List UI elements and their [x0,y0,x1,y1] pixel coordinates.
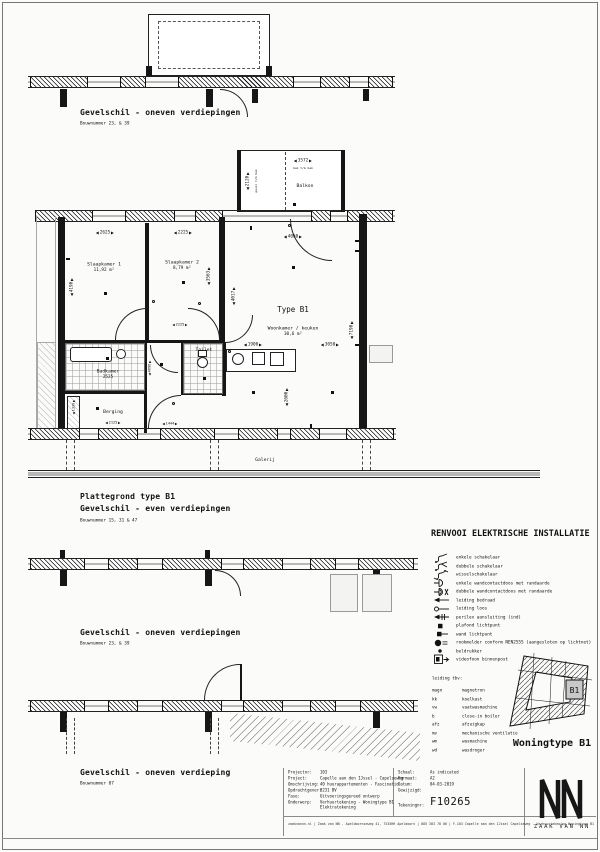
plan-title-2: Gevelschil - even verdiepingen [80,504,231,513]
tb-label: Fase: [288,794,300,799]
wall-hatch [346,429,394,439]
gallery-label: Galerij [255,457,275,463]
ceiling-light-symbol [160,363,163,366]
conduit-label: wasmachine [462,739,487,744]
wall-hatch [347,211,393,221]
section-subtitle: Bouwnummer 07 [80,781,114,786]
balkon-wall [341,150,345,212]
wall-socket-symbol [66,258,70,260]
adjacent-unit-box [369,345,393,363]
door-leaf [240,664,242,700]
wall-hatch [290,429,320,439]
ceiling-light-symbol [292,266,295,269]
room-label-slaapkamer1: Slaapkamer 1 11,92 m² [87,262,121,274]
dimension-label: 1444 [162,422,177,426]
switch-symbol [198,302,201,305]
wall-hatch [98,429,138,439]
plan-subtitle: Bouwnummer 15, 31 & 47 [80,518,137,523]
tb-label: Gewijzigd: [398,788,422,793]
bathroom-wall [65,391,145,394]
ceiling-light-symbol [331,391,334,394]
conduit-abbr: b [432,714,435,719]
switch-symbol [152,300,155,303]
legend-label: leiding loos [456,606,487,611]
section-subtitle: Bouwnummer 23, & 39 [80,121,129,126]
unit-highlight-label: B1 [570,686,580,695]
tb-value: 40 huurappartementen - Fascinatio [320,782,399,787]
section-title: Gevelschil - oneven verdiepingen [80,628,241,637]
room-label-badkamer: Badkamer 2525 [97,369,120,381]
facade-band [28,76,395,88]
section-title: Gevelschil - oneven verdieping [80,768,231,777]
kitchen-hob [270,352,284,366]
gallery-edge-line [28,470,540,471]
room-name: Badkamer [97,369,120,374]
wall-hatch [243,559,283,569]
conduit-abbr: wd [432,748,437,753]
conduit-label: magnetron [462,688,485,693]
tb-value: 8231 BV [320,788,337,793]
dimension-note: bak t/m bak [293,166,313,170]
facade-band [28,558,418,570]
wall-socket-symbol [355,250,359,252]
dimension-label: 3563 [207,267,211,285]
legend-label: dubbele schakelaar [456,563,503,568]
wall-socket-symbol [250,226,252,230]
plan-top-wall [35,210,395,222]
wall-post [205,570,212,586]
dimension-label: 3572 [294,159,312,163]
ceiling-light-symbol [104,292,107,295]
gallery-dashed-line [74,440,75,470]
wall-socket-symbol [355,240,359,242]
room-area: 8,79 m² [165,266,199,272]
conduit-abbr: kk [432,697,437,702]
dimension-label: 2600 [285,388,289,406]
legend-title: RENVOOI ELEKTRISCHE INSTALLATIE [431,529,590,539]
section-title: Gevelschil - oneven verdiepingen [80,108,241,117]
gallery-dashed-line [210,440,211,470]
wall-post [373,712,380,728]
dimension-label: 4696 [148,360,152,375]
tb-value: 04-03-2019 [430,782,454,787]
kitchen-sink [232,353,244,365]
conduit-label: afzuigkap [462,722,485,727]
kitchen-appliance [252,352,265,365]
wall-hatch [160,429,215,439]
legend-label: plafond lichtpunt [456,623,500,628]
section-subtitle: Bouwnummer 23, & 39 [80,641,129,646]
wall-post [252,89,258,103]
legend-label: enkele schakelaar [456,555,500,560]
dimension-label: 2625 [96,231,114,235]
room-name: Slaapkamer 1 [87,262,121,267]
dimension-label: 1330 [72,399,76,414]
tb-label: Project: [288,776,307,781]
dashed-projection-line [66,718,67,754]
conduit-list-title: leiding tbv: [432,676,462,681]
wall-post [206,89,213,107]
gallery-dashed-line [66,440,67,470]
conduit-label: koelkast [462,697,482,702]
drawing-sheet: { "sections": { "facade_top": {"title": … [0,0,600,852]
wall-hatch [238,429,278,439]
ceiling-light-symbol [203,377,206,380]
room-label-woonkamer: Woonkamer / keuken 30,6 m² [268,326,319,338]
tb-label: Schaal: [398,770,415,775]
room-name: Woonkamer / keuken [268,326,319,331]
adjacent-unit-hatch [37,342,56,432]
toilet-bowl [197,357,208,368]
conduit-abbr: afz [432,722,440,727]
wall-hatch [320,77,350,87]
dimension-label: 4190 [70,278,74,296]
balkon-outline [237,150,345,212]
dimension-label: 4017 [232,287,236,305]
intercom-icon [433,654,451,665]
switch-symbol [288,224,291,227]
wall-hatch [120,77,146,87]
wall-post [363,89,369,101]
tb-label: Datum: [398,782,412,787]
dimension-label: 4060 [284,235,302,239]
dashed-projection-line [210,718,211,754]
wall-hatch [360,701,414,711]
gallery-edge-line [28,477,540,478]
left-wall [58,217,65,433]
room-area: 11,92 m² [87,268,121,274]
room-area: 30,6 m² [268,332,319,338]
wall-hatch [310,701,336,711]
conduit-label: close-in boiler [462,714,500,719]
room-label-balkon: Balkon [297,183,314,189]
ceiling-light-symbol [96,407,99,410]
tb-value: Uitvoeringsgereed ontwerp [320,794,380,799]
plan-title: Plattegrond type B1 [80,492,175,501]
conduit-abbr: magn [432,688,442,693]
legend-label: wand lichtpunt [456,631,492,636]
legend-label: leiding bedraad [456,597,495,602]
tb-label: Formaat: [398,776,417,781]
wall-hatch [125,211,175,221]
wall-hatch [30,701,85,711]
dimension-label: 7190 [350,321,354,339]
conduit-label: wasdroger [462,748,485,753]
conduit-label: vaatwasmachine [462,705,497,710]
wall-hatch [243,701,283,711]
tb-footer: zaakvannn.nl | Zaak van NN - Apeldoornse… [288,822,519,826]
right-wall [359,214,367,435]
washbasin [116,349,126,359]
dimension-label: 3050 [321,343,339,347]
wall-hatch [108,701,138,711]
legend-label: rookmelder conform NEN2555 (aangesloten … [456,640,591,645]
legend-label: enkele wandcontactdoos met randaarde [456,580,550,585]
tb-value: Capelle aan den IJssel - Capelseweg [320,776,403,781]
wall-post [60,550,65,558]
divider [2,838,597,839]
room-name: Slaapkamer 2 [165,260,199,265]
wall-post [205,550,210,558]
balcony-dashed-opening [158,21,260,69]
site-key-label: Woningtype B1 [510,738,594,749]
tb-value: 103 [320,770,327,775]
gallery-floor [28,472,540,476]
ceiling-light-symbol [106,357,109,360]
tb-label: Onderwerp: [288,800,312,805]
wall-hatch [358,559,414,569]
ceiling-light-symbol [252,391,255,394]
conduit-abbr: wm [432,739,437,744]
conduit-abbr: vw [432,705,437,710]
dimension-label: 2125 [105,421,120,425]
wall-hatch [368,77,393,87]
plan-bottom-wall [28,428,396,440]
site-key-map: B1 [504,650,594,738]
legend-label: videofoon binnenpost [456,657,508,662]
dashed-projection-line [218,718,219,754]
gallery-dashed-line [370,440,371,470]
window-box [330,574,358,612]
dimension-label: 1900 [244,343,262,347]
nn-logo-icon [538,776,584,820]
dimension-note: gevel t/m bak [254,169,258,192]
ceiling-light-symbol [293,203,296,206]
tb-label: Omschrijving: [288,782,319,787]
unit-type-label: Type B1 [277,305,309,314]
dimension-label: 2225 [174,231,192,235]
ceiling-light-symbol [182,281,185,284]
balkon-dashed-line [285,152,286,210]
tb-value: A2 [430,776,435,781]
dimension-label: 2120 [246,172,250,190]
conduit-abbr: mv [432,731,437,736]
balkon-wall [237,150,241,212]
legend-label: wisselschakelaar [456,572,498,577]
wall-hatch [30,429,80,439]
drawing-number: F10265 [430,796,471,808]
room-label-toilet: Toilet [196,347,213,353]
room-dim: 2525 [97,375,120,381]
toilet-wall [181,393,225,395]
tb-label: Projectnr: [288,770,312,775]
wall-post [60,570,67,586]
legend-label: perilex aansluiting (ind) [456,614,521,619]
wall-hatch [108,559,138,569]
tb-value: As indicated [430,770,459,775]
tb-label: Opdrachtgever: [288,788,321,793]
switch-symbol [172,402,175,405]
dimension-label: 2225 [172,323,187,327]
company-name: ZAAK VAN NN [527,824,597,830]
switch-symbol [228,350,231,353]
legend-label: beldrukker [456,648,482,653]
wall-hatch [162,701,222,711]
wall-hatch [162,559,222,569]
gallery-dashed-line [362,440,363,470]
wall-post [60,89,67,107]
facade-band [28,700,418,712]
legend-label: dubbele wandcontactdoos met randaarde [456,589,552,594]
tb-label: Tekeningnr: [398,803,424,808]
gallery-dashed-line [218,440,219,470]
dashed-projection-line [74,718,75,754]
storage-wall [144,343,147,433]
wall-hatch [30,559,85,569]
wall-socket-symbol [355,344,359,346]
tb-value: Verhuurtekening - Woningtype B1 Elektrat… [320,800,398,811]
wall-hatch [310,559,336,569]
window-box [362,574,392,612]
wall-hatch [30,77,88,87]
divider [283,768,284,836]
room-label-berging: Berging [103,409,123,415]
room-label-slaapkamer2: Slaapkamer 2 8,79 m² [165,260,199,272]
wall-hatch [178,77,294,87]
